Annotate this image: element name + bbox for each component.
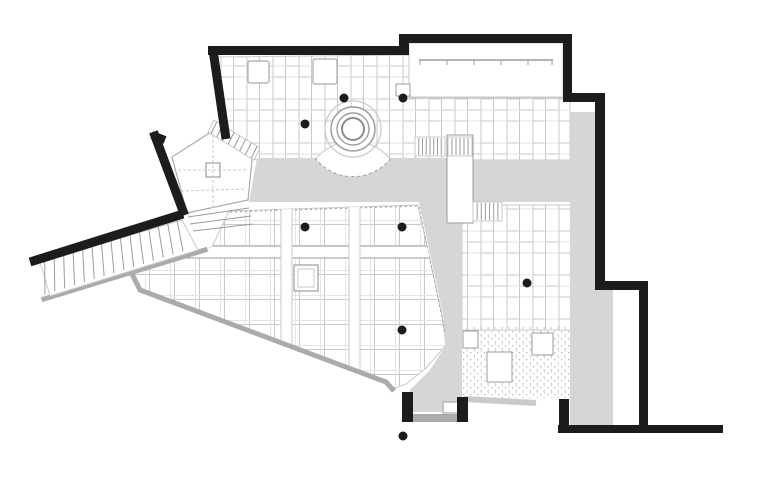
hall-center-table-inner: [298, 269, 314, 287]
terrace-table-mid: [532, 333, 553, 355]
entry-shadow-line: [464, 399, 536, 403]
wall-east-upper: [563, 34, 572, 102]
vestibule-wall-east: [457, 397, 468, 422]
wall-south-stub: [559, 399, 569, 427]
counter-room-floor: [409, 43, 563, 97]
wall-top-east: [404, 34, 572, 43]
right-room-floor: [462, 205, 572, 330]
upper-hall-table-west: [248, 61, 269, 83]
bridge-top-steps: [448, 137, 472, 156]
floor-plan-drawing: [0, 0, 768, 501]
rotunda-inner-circle: [342, 118, 364, 140]
wall-south: [558, 425, 723, 433]
hall-beam-vertical-east: [349, 205, 360, 387]
hall-beam-vertical-west: [281, 206, 292, 386]
corridor-band-west: [249, 158, 447, 202]
corridor-strip-east: [570, 112, 613, 425]
right-room-steps: [473, 202, 502, 221]
wall-east-mid: [595, 93, 605, 290]
corridor-band-east: [472, 160, 570, 202]
wall-east-lower: [639, 281, 648, 433]
entry-door-leaf: [443, 402, 458, 413]
vestibule-wall-west: [402, 392, 413, 422]
terrace-table-large: [487, 352, 512, 382]
wall-west-diagonal-cap: [152, 135, 165, 140]
upper-hall-table-east: [313, 59, 337, 84]
bridge-west-steps: [415, 137, 445, 156]
floor-plan-layers: [30, 34, 723, 441]
floor-plan-page: [0, 0, 768, 501]
terrace-table-small: [463, 331, 478, 348]
wall-top-west: [208, 46, 404, 55]
